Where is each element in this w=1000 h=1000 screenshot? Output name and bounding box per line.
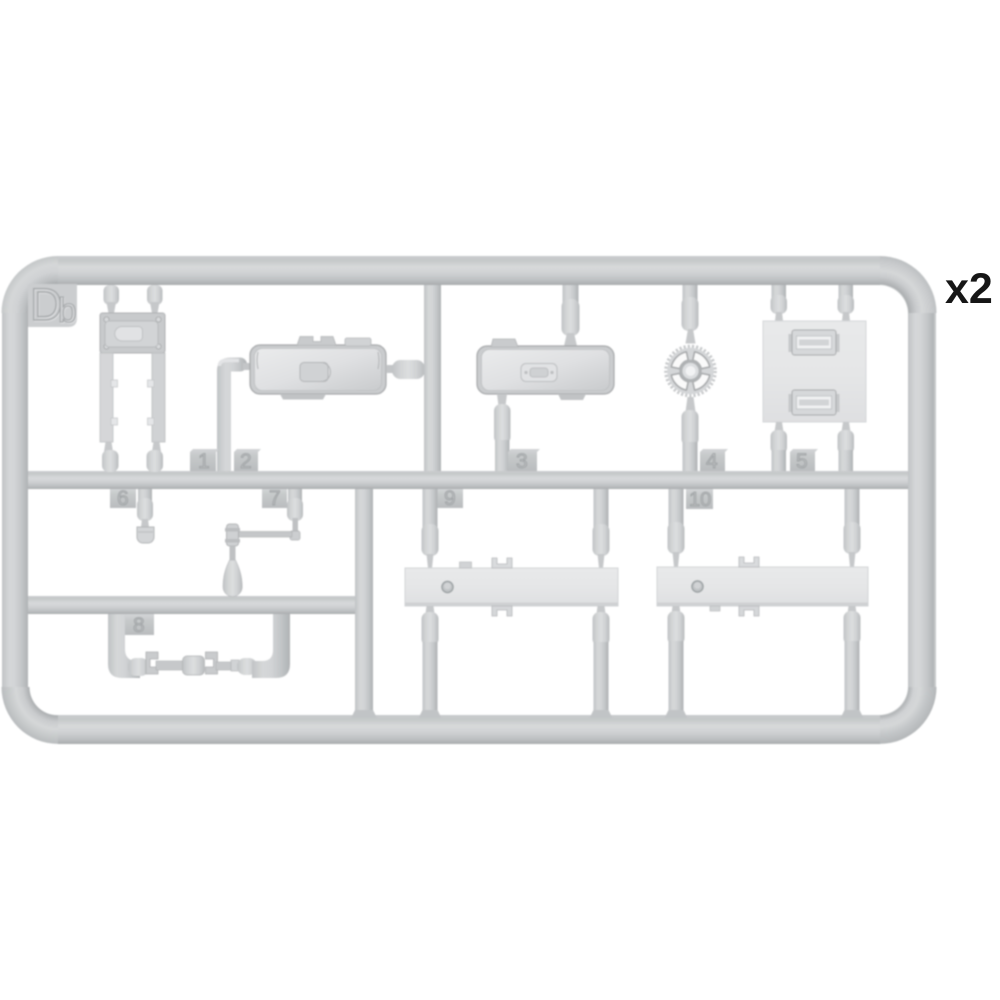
svg-text:2: 2 [240, 450, 252, 473]
svg-text:b: b [58, 292, 77, 330]
svg-text:8: 8 [133, 614, 145, 637]
svg-text:5: 5 [796, 450, 808, 473]
svg-text:6: 6 [117, 487, 129, 510]
svg-text:x2: x2 [945, 265, 993, 313]
svg-text:10: 10 [689, 489, 711, 511]
svg-text:4: 4 [706, 450, 718, 473]
svg-text:9: 9 [444, 487, 456, 510]
svg-text:1: 1 [198, 450, 210, 473]
svg-text:7: 7 [269, 487, 281, 510]
svg-text:3: 3 [516, 450, 528, 473]
